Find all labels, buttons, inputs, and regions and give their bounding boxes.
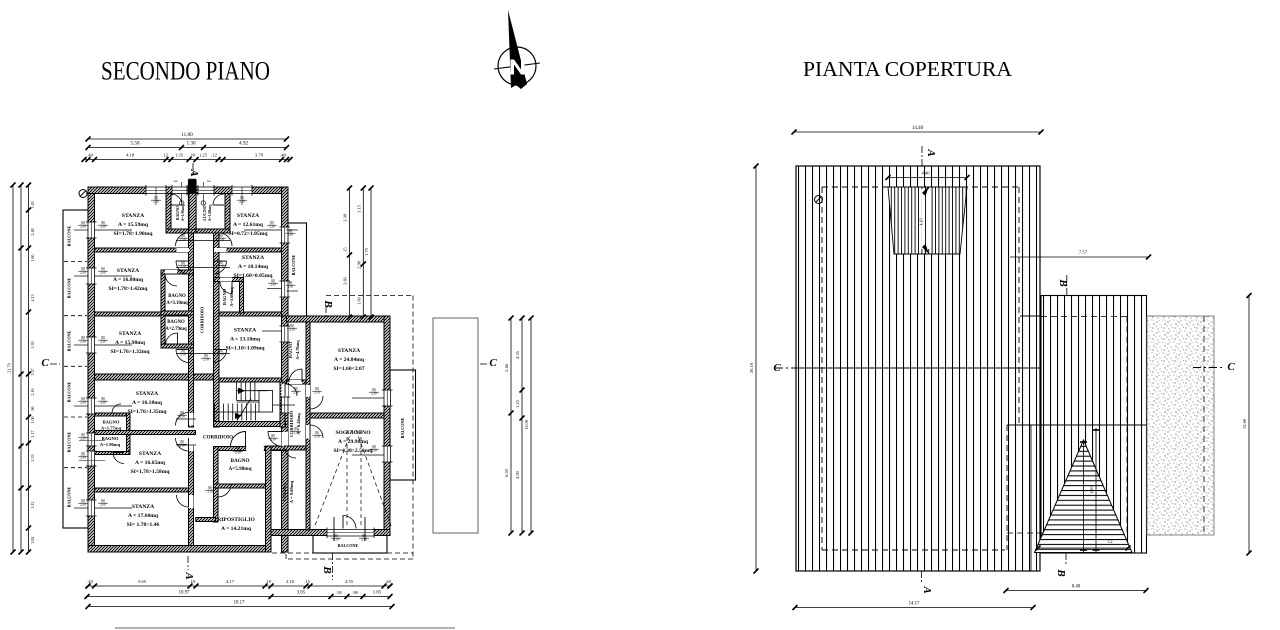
svg-text:14.17: 14.17	[909, 602, 920, 607]
svg-text:SI=4.30>2.56mq: SI=4.30>2.56mq	[333, 448, 373, 454]
svg-text:A = 16.80mq: A = 16.80mq	[113, 277, 144, 283]
svg-text:SI=0.72>1.05mq: SI=0.72>1.05mq	[228, 231, 268, 237]
svg-text:SI=1.10>1.09mq: SI=1.10>1.09mq	[225, 346, 265, 352]
svg-text:4.13: 4.13	[30, 295, 35, 302]
svg-text:A=5.98mq: A=5.98mq	[229, 466, 252, 472]
svg-text:3.78: 3.78	[255, 153, 264, 158]
svg-text:SI=1.78>1.42mq: SI=1.78>1.42mq	[108, 286, 148, 292]
svg-text:.40: .40	[385, 579, 391, 584]
svg-text:13.08: 13.08	[524, 419, 529, 430]
svg-text:4.92: 4.92	[239, 141, 248, 147]
svg-text:1.60: 1.60	[356, 296, 361, 304]
svg-text:A=3.60mq: A=3.60mq	[229, 287, 234, 307]
svg-text:BAGNO: BAGNO	[168, 294, 186, 299]
svg-text:7.57: 7.57	[1079, 250, 1088, 255]
svg-text:LUCINO: LUCINO	[203, 205, 207, 220]
svg-text:B: B	[322, 299, 334, 307]
svg-text:STANZA: STANZA	[122, 213, 144, 219]
svg-text:A = 29.98mq: A = 29.98mq	[338, 439, 369, 445]
svg-text:SI=1.76>1.32mq: SI=1.76>1.32mq	[110, 349, 150, 355]
svg-text:1.70: 1.70	[364, 247, 369, 255]
svg-text:A = 12.61mq: A = 12.61mq	[233, 222, 264, 228]
svg-text:5.46: 5.46	[504, 363, 509, 371]
svg-text:3.60: 3.60	[343, 276, 348, 284]
svg-text:.18: .18	[265, 579, 271, 584]
svg-text:BAGNO: BAGNO	[230, 458, 249, 464]
svg-text:C: C	[773, 362, 781, 374]
svg-text:.40: .40	[87, 579, 93, 584]
svg-text:10.97: 10.97	[179, 591, 190, 596]
svg-text:A = 17.60mq: A = 17.60mq	[128, 513, 159, 519]
svg-text:BAGNO: BAGNO	[288, 341, 293, 358]
svg-text:.96: .96	[30, 407, 35, 412]
svg-text:STANZA: STANZA	[237, 213, 259, 219]
svg-text:.40: .40	[87, 153, 93, 158]
svg-text:STANZA: STANZA	[234, 328, 256, 334]
svg-text:18.17: 18.17	[234, 601, 245, 606]
svg-text:B: B	[321, 565, 333, 573]
svg-text:4.10: 4.10	[919, 218, 924, 225]
svg-text:4.35: 4.35	[515, 350, 520, 358]
svg-text:15.60: 15.60	[1242, 418, 1247, 429]
svg-text:4.17: 4.17	[226, 579, 235, 584]
svg-text:A=4.76mq: A=4.76mq	[295, 340, 300, 360]
svg-text:1.17: 1.17	[30, 431, 35, 438]
svg-text:2.48: 2.48	[30, 229, 35, 236]
svg-text:6.59: 6.59	[504, 468, 509, 476]
svg-text:.15: .15	[304, 579, 310, 584]
svg-text:.12: .12	[211, 153, 217, 158]
svg-text:A = 24.84mq: A = 24.84mq	[334, 357, 365, 363]
svg-text:CORRIDOIO: CORRIDOIO	[200, 306, 205, 333]
svg-text:BALCONE: BALCONE	[400, 417, 405, 438]
svg-text:4.10: 4.10	[1089, 487, 1094, 494]
svg-text:4.90: 4.90	[515, 470, 520, 478]
svg-text:BALCONE: BALCONE	[67, 225, 72, 246]
svg-text:4.40: 4.40	[921, 171, 930, 176]
svg-text:3.38: 3.38	[343, 213, 348, 221]
svg-text:BALCONE: BALCONE	[67, 486, 72, 507]
svg-text:3.2: 3.2	[1108, 539, 1113, 544]
svg-text:2.16: 2.16	[30, 389, 35, 396]
svg-text:5.58: 5.58	[130, 141, 139, 147]
svg-text:BALCONE: BALCONE	[291, 254, 296, 275]
svg-text:BALCONE: BALCONE	[338, 543, 359, 548]
svg-text:C: C	[41, 357, 49, 369]
svg-text:BALCONE: BALCONE	[67, 431, 72, 452]
svg-text:PIANTA COPERTURA: PIANTA COPERTURA	[803, 57, 1013, 81]
svg-text:A: A	[188, 168, 200, 176]
svg-text:BAGNO: BAGNO	[176, 206, 180, 220]
svg-text:B: B	[1055, 568, 1067, 576]
svg-text:SI= 1.78>1.46: SI= 1.78>1.46	[127, 522, 160, 528]
svg-text:CORRIDOIO: CORRIDOIO	[203, 436, 233, 441]
svg-text:SECONDO PIANO: SECONDO PIANO	[101, 57, 270, 86]
svg-text:.40: .40	[280, 153, 286, 158]
svg-text:1.60: 1.60	[30, 255, 35, 262]
svg-text:asc: asc	[174, 179, 179, 183]
svg-text:3.65: 3.65	[297, 591, 306, 596]
svg-text:STANZA: STANZA	[132, 504, 154, 510]
svg-text:.18: .18	[189, 579, 195, 584]
svg-text:2.10: 2.10	[286, 579, 295, 584]
svg-text:SI=1.60<2.07: SI=1.60<2.07	[333, 366, 364, 372]
svg-text:4.18: 4.18	[126, 153, 135, 158]
svg-text:BALCONE: BALCONE	[67, 277, 72, 298]
svg-text:C: C	[1227, 361, 1235, 373]
svg-text:STANZA: STANZA	[117, 268, 139, 274]
svg-text:5.30: 5.30	[30, 342, 35, 349]
svg-text:STANZA: STANZA	[136, 391, 158, 397]
svg-text:A=3.10mq: A=3.10mq	[166, 301, 188, 306]
svg-text:1.30: 1.30	[186, 141, 195, 147]
svg-text:A = 15.90mq: A = 15.90mq	[115, 340, 146, 346]
svg-text:BAGNO: BAGNO	[103, 420, 120, 425]
svg-text:SI=1.78>1.90mq: SI=1.78>1.90mq	[113, 231, 153, 237]
svg-text:RIPOSTIGLIO: RIPOSTIGLIO	[217, 517, 255, 523]
svg-text:STANZA: STANZA	[242, 255, 264, 261]
svg-text:8.40: 8.40	[1072, 585, 1081, 590]
svg-text:3.15: 3.15	[356, 204, 361, 212]
svg-text:BAGNO: BAGNO	[222, 288, 227, 305]
svg-text:1.35: 1.35	[175, 153, 184, 158]
svg-text:asc: asc	[207, 179, 212, 183]
svg-text:A = 15.59mq: A = 15.59mq	[118, 222, 149, 228]
svg-text:11.80: 11.80	[181, 132, 193, 138]
svg-text:BALCONE: BALCONE	[67, 381, 72, 402]
svg-text:.92: .92	[336, 590, 342, 595]
svg-text:BAGNO: BAGNO	[167, 320, 185, 325]
svg-text:SI=1.78>1.58mq: SI=1.78>1.58mq	[130, 469, 170, 475]
svg-text:A: A	[921, 585, 933, 593]
svg-text:4.55: 4.55	[345, 579, 354, 584]
svg-text:2.33: 2.33	[30, 455, 35, 462]
svg-text:A=1.96mq: A=1.96mq	[100, 442, 121, 447]
svg-text:BALCONE: BALCONE	[67, 330, 72, 351]
svg-text:A = 9.69mq: A = 9.69mq	[289, 480, 294, 503]
svg-text:A=1.90mq: A=1.90mq	[181, 204, 185, 222]
svg-text:A=1.77mq: A=1.77mq	[101, 426, 122, 431]
svg-text:14.40: 14.40	[912, 126, 924, 131]
svg-text:3.37: 3.37	[30, 369, 35, 376]
svg-text:A = 16.18mq: A = 16.18mq	[132, 400, 163, 406]
svg-text:A = 13.10mq: A = 13.10mq	[230, 337, 261, 343]
svg-text:1.25: 1.25	[199, 153, 208, 158]
svg-text:SOGGIORNO: SOGGIORNO	[335, 430, 371, 436]
svg-text:STANZA: STANZA	[338, 348, 360, 354]
svg-text:CUCINA: CUCINA	[282, 482, 287, 501]
svg-text:1.65: 1.65	[373, 591, 382, 596]
svg-text:26.10: 26.10	[749, 362, 754, 373]
svg-text:1.25: 1.25	[515, 399, 520, 407]
svg-text:SI=1.60>0.85mq: SI=1.60>0.85mq	[233, 273, 273, 279]
svg-text:3.82: 3.82	[30, 537, 35, 544]
svg-text:5.65: 5.65	[138, 579, 147, 584]
svg-text:BAGNO: BAGNO	[102, 436, 119, 441]
svg-text:STANZA: STANZA	[139, 451, 161, 457]
svg-text:A = 16.65mq: A = 16.65mq	[135, 460, 166, 466]
svg-text:C: C	[489, 357, 497, 369]
svg-text:A: A	[925, 148, 937, 156]
svg-text:A = 10.14mq: A = 10.14mq	[238, 264, 269, 270]
svg-text:.98: .98	[352, 590, 358, 595]
svg-text:.20: .20	[189, 153, 195, 158]
svg-text:3.12: 3.12	[30, 502, 35, 509]
svg-text:21.70: 21.70	[7, 362, 12, 373]
svg-text:.12: .12	[162, 153, 168, 158]
svg-text:2.98: 2.98	[356, 260, 361, 268]
svg-text:STANZA: STANZA	[119, 331, 141, 337]
svg-text:.15: .15	[343, 246, 348, 252]
svg-text:SI=1.76>1.35mq: SI=1.76>1.35mq	[127, 409, 167, 415]
svg-text:1.06: 1.06	[30, 417, 35, 424]
svg-text:A=1.68mq: A=1.68mq	[208, 204, 212, 222]
svg-text:A=2.79mq: A=2.79mq	[165, 327, 187, 332]
svg-text:3.18: 3.18	[30, 202, 35, 209]
svg-text:A = 14.21mq: A = 14.21mq	[221, 526, 252, 532]
